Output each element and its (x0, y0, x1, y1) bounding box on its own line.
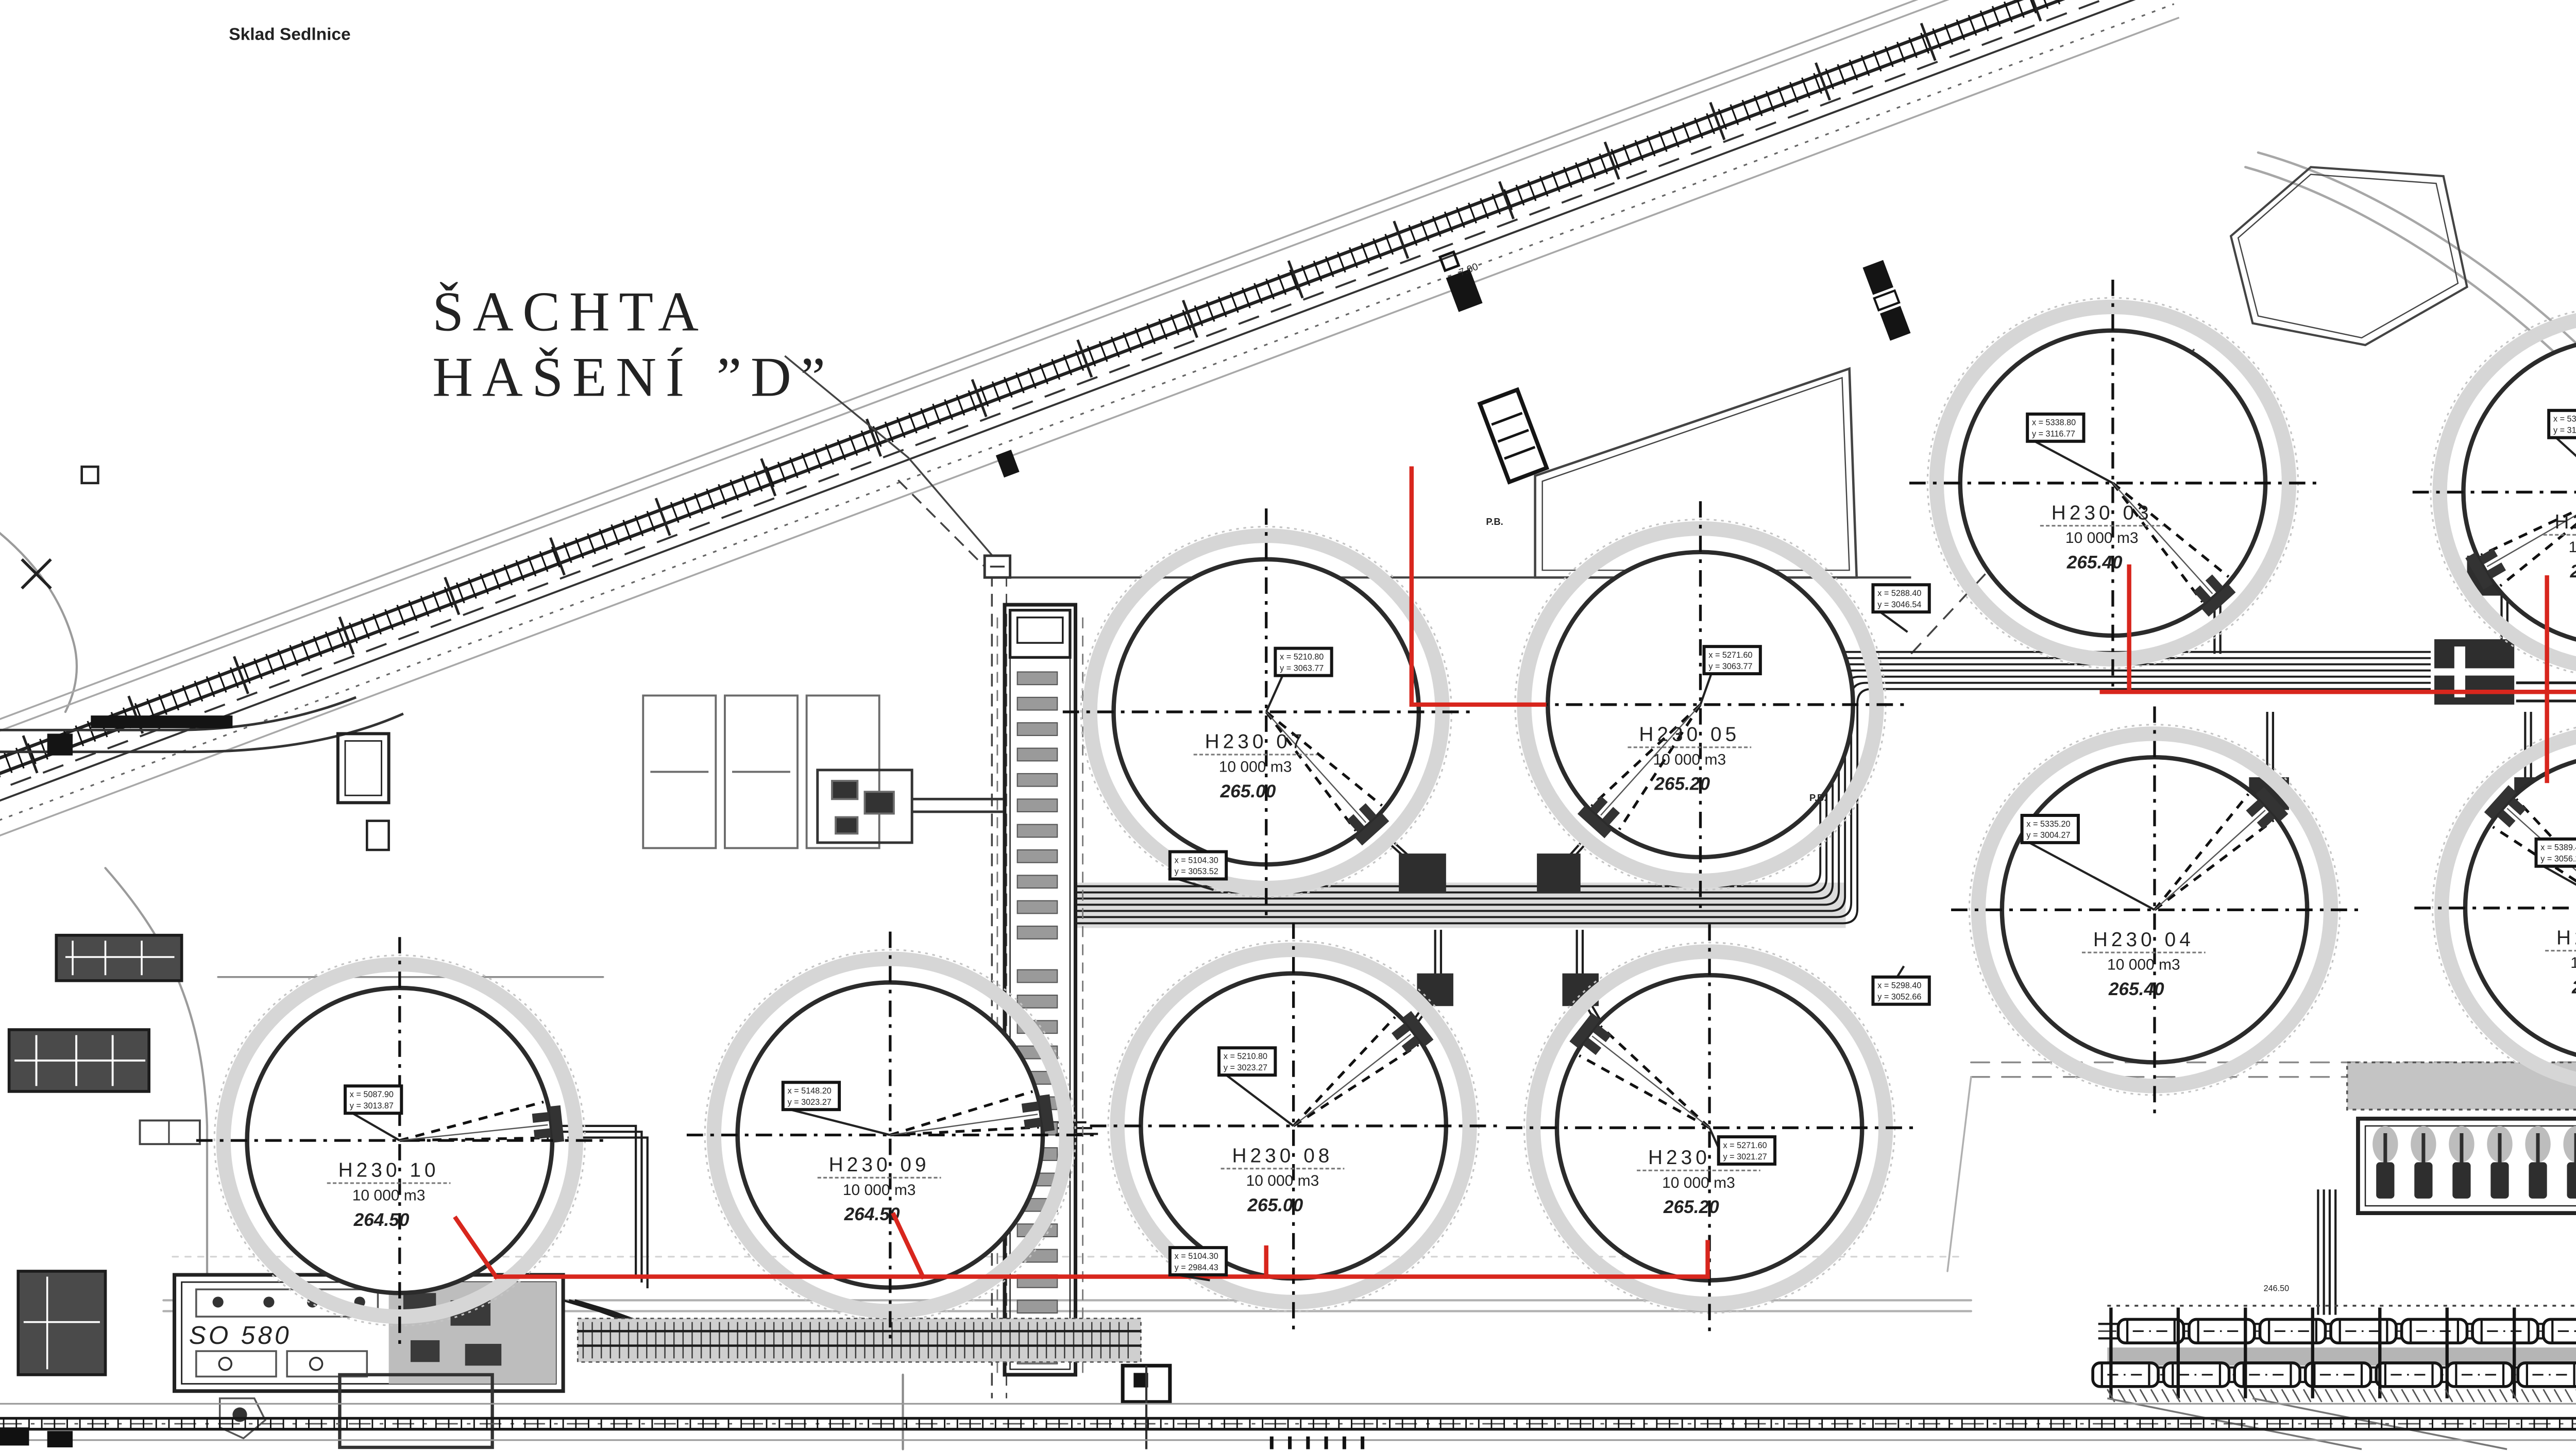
tank-H230-04: H230 0410 000 m3265.40x = 5335.20y = 300… (1951, 706, 2358, 1113)
callout-x: x = 5298.40 (1877, 981, 1921, 991)
tank-farm: H230 0710 000 m3265.00x = 5210.80y = 306… (196, 280, 2576, 1344)
coordinate-callout: x = 5104.30y = 2984.43 (1170, 1248, 1226, 1280)
tank-volume: 10 000 m3 (843, 1182, 916, 1199)
tank-wagon (2518, 1363, 2576, 1387)
callout-y: y = 3056.27 (2540, 855, 2576, 864)
tank-id: H230 04 (2093, 929, 2194, 951)
tank-volume: 10 000 m3 (1246, 1172, 1319, 1189)
pump-unit (2529, 1162, 2547, 1199)
tank-wagon (2331, 1319, 2396, 1343)
callout-x: x = 5338.80 (2032, 418, 2076, 428)
settling-basins (643, 695, 1003, 848)
tank-volume: 10 000 m3 (1662, 1174, 1735, 1191)
tank-id: H230 08 (1232, 1145, 1333, 1167)
tank-elevation: 265.00 (1247, 1196, 1303, 1216)
callout-x: x = 5104.30 (1175, 1252, 1218, 1261)
callout-y: y = 3053.52 (1175, 867, 1218, 876)
tank-wagon (2376, 1363, 2442, 1387)
tank-wagon (2402, 1319, 2467, 1343)
tank-elevation: 264.50 (353, 1210, 410, 1230)
tank-wagon (2306, 1363, 2371, 1387)
callout-x: x = 5087.90 (350, 1090, 394, 1099)
pump-station-east (2347, 1063, 2576, 1214)
tank-elevation: 265.00 (1220, 781, 1276, 801)
callout-x: x = 5389.40 (2540, 843, 2576, 852)
tank-elevation: 265.60 (2571, 978, 2576, 998)
callout-y: y = 3063.77 (1280, 663, 1324, 673)
tank-id: H230 02 (2556, 927, 2576, 949)
callout-y: y = 3063.77 (1708, 662, 1752, 671)
small-store (140, 1120, 200, 1144)
pump-unit (2414, 1162, 2432, 1199)
callout-y: y = 3023.27 (1224, 1063, 1267, 1072)
tank-volume: 10 000 m3 (2065, 530, 2139, 547)
pump-unit (2490, 1162, 2509, 1199)
tank-id: H230 07 (1205, 731, 1306, 753)
tank-id: H230 03 (2052, 502, 2153, 524)
callout-y: y = 3004.27 (2026, 831, 2070, 840)
tank-volume: 10 000 m3 (2570, 954, 2576, 971)
buffer-stop (47, 733, 73, 755)
railway-shaft-cluster (1863, 260, 1911, 341)
tank-elevation: 265.40 (2066, 553, 2123, 573)
tank-wagon (2118, 1319, 2183, 1343)
building-south (9, 1030, 149, 1091)
tank-volume: 10 000 m3 (1653, 751, 1726, 768)
fixed-point-label-2: P.B. (1486, 516, 1503, 527)
tank-id: H230 10 (338, 1159, 439, 1182)
tank-elevation: 265.60 (2569, 561, 2576, 582)
tank-elevation: 265.40 (2108, 979, 2164, 999)
tank-wagon (2164, 1363, 2229, 1387)
tank-H230-03: H230 0310 000 m3265.40x = 5338.80y = 311… (1909, 280, 2316, 687)
callout-y: y = 3052.66 (1877, 993, 1921, 1002)
tank-H230-02: H230 0210 000 m3265.60x = 5389.40y = 305… (2414, 705, 2576, 1112)
tank-id: H230 09 (829, 1154, 930, 1176)
callout-y: y = 3021.27 (1723, 1152, 1767, 1162)
level-crossing-icon (22, 559, 50, 588)
tank-id: H230 05 (1639, 723, 1740, 745)
tank-wagon (2544, 1319, 2576, 1343)
admin-buildings (9, 935, 200, 1375)
railway-structures: 7.00 (996, 249, 1911, 482)
tank-volume: 10 000 m3 (2569, 539, 2576, 556)
site-plan-drawing: 7.00 (0, 0, 2576, 1451)
tank-volume: 10 000 m3 (1219, 758, 1292, 775)
callout-y: y = 2984.43 (1175, 1263, 1218, 1272)
site-title: Sklad Sedlnice (229, 25, 350, 44)
bottom-main-railway (0, 1404, 2576, 1449)
building-north (56, 935, 181, 981)
buried-pipe-channel (578, 1319, 1141, 1362)
so580-label: SO 580 (189, 1321, 292, 1350)
empty-basin-center (1535, 369, 1857, 577)
callout-x: x = 5210.80 (1280, 653, 1324, 662)
coordinate-callout: x = 5288.40y = 3046.54 (1873, 585, 1929, 632)
callout-x: x = 5271.60 (1708, 651, 1752, 660)
callout-x: x = 5271.60 (1723, 1141, 1767, 1150)
platform-elevation-label: 246.50 (2264, 1284, 2290, 1293)
pump-unit (2567, 1162, 2576, 1199)
callout-y: y = 3023.27 (788, 1098, 832, 1107)
rail-platform (91, 715, 232, 728)
callout-x: x = 5389.40 (2553, 415, 2576, 424)
tank-wagon (2447, 1363, 2513, 1387)
callout-y: y = 3116.77 (2032, 430, 2075, 439)
pump-unit (2376, 1162, 2394, 1199)
callout-x: x = 5210.80 (1224, 1052, 1267, 1061)
tank-wagon (2472, 1319, 2538, 1343)
callout-x: x = 5335.20 (2026, 820, 2070, 829)
callout-y: y = 3046.54 (1877, 600, 1921, 609)
tank-elevation: 265.20 (1663, 1197, 1719, 1217)
tank-elevation: 265.20 (1654, 774, 1710, 794)
callout-x: x = 5148.20 (788, 1086, 832, 1096)
shaft-annotation: ŠACHTA HAŠENÍ ”D” (432, 281, 1010, 577)
building-gatehouse (18, 1271, 105, 1375)
tank-volume: 10 000 m3 (2107, 957, 2180, 974)
valve-pit (1123, 1365, 1170, 1449)
tank-H230-05: H230 0510 000 m3265.20x = 5271.60y = 306… (1497, 501, 1904, 908)
coordinate-callout: x = 5298.40y = 3052.66 (1873, 966, 1929, 1004)
callout-x: x = 5288.40 (1877, 589, 1921, 598)
shaft-label-line2: HAŠENÍ ”D” (432, 346, 834, 408)
shaft-label-line1: ŠACHTA (432, 281, 707, 343)
callout-x: x = 5104.30 (1175, 856, 1218, 865)
tank-wagon (2260, 1319, 2326, 1343)
callout-y: y = 3116.77 (2553, 426, 2576, 435)
tank-wagon (2093, 1363, 2158, 1387)
fixed-point-label-1: P.B. (1809, 792, 1826, 803)
tank-volume: 10 000 m3 (352, 1187, 426, 1204)
tank-id: H230 01 (2555, 511, 2576, 533)
callout-y: y = 3013.87 (350, 1101, 394, 1111)
pump-unit (2452, 1162, 2470, 1199)
